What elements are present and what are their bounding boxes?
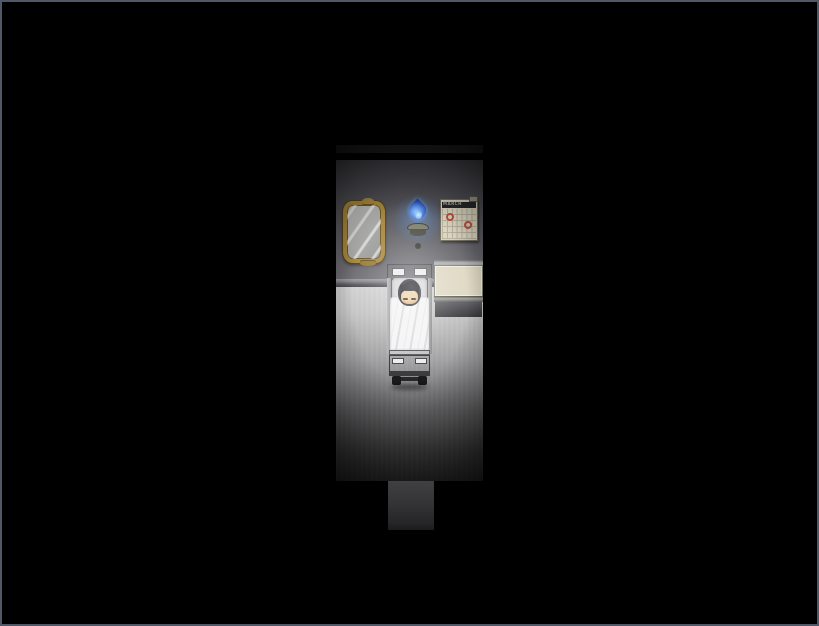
footboard-latch — [415, 358, 427, 364]
calendar-title: MARCH — [443, 203, 462, 206]
doorway-opening[interactable] — [388, 481, 434, 530]
headboard-panel — [392, 268, 405, 276]
side-table-front — [435, 302, 482, 317]
footboard-latch — [392, 358, 404, 364]
closed-eye-right — [411, 298, 416, 300]
character-face — [401, 290, 418, 304]
flame-core-highlight — [415, 211, 422, 219]
closed-eye-left — [403, 298, 408, 300]
sleeping-character[interactable] — [398, 279, 421, 306]
headboard-panel — [414, 268, 427, 276]
blue-torch-sconce[interactable] — [394, 193, 442, 255]
side-table-surface — [435, 266, 482, 296]
mirror-crest-bottom — [360, 260, 376, 266]
wall-calendar[interactable]: MARCH — [440, 199, 478, 241]
bed[interactable] — [387, 264, 432, 391]
calendar-header: MARCH — [442, 202, 476, 208]
calendar-marked-day — [464, 221, 472, 229]
calendar-marked-day — [446, 213, 454, 221]
bedroom-room[interactable]: MARCH — [336, 145, 483, 481]
mirror-crest-top — [362, 198, 374, 205]
wheel-axle — [399, 377, 420, 381]
mirror-glass — [347, 205, 381, 259]
sconce-tip — [415, 243, 421, 249]
bed-footboard — [389, 355, 430, 372]
side-table[interactable] — [434, 260, 483, 317]
game-viewport[interactable]: MARCH — [0, 0, 819, 626]
character-hair-fringe — [400, 285, 419, 291]
bed-shadow — [391, 384, 428, 390]
ornate-mirror[interactable] — [343, 201, 385, 263]
